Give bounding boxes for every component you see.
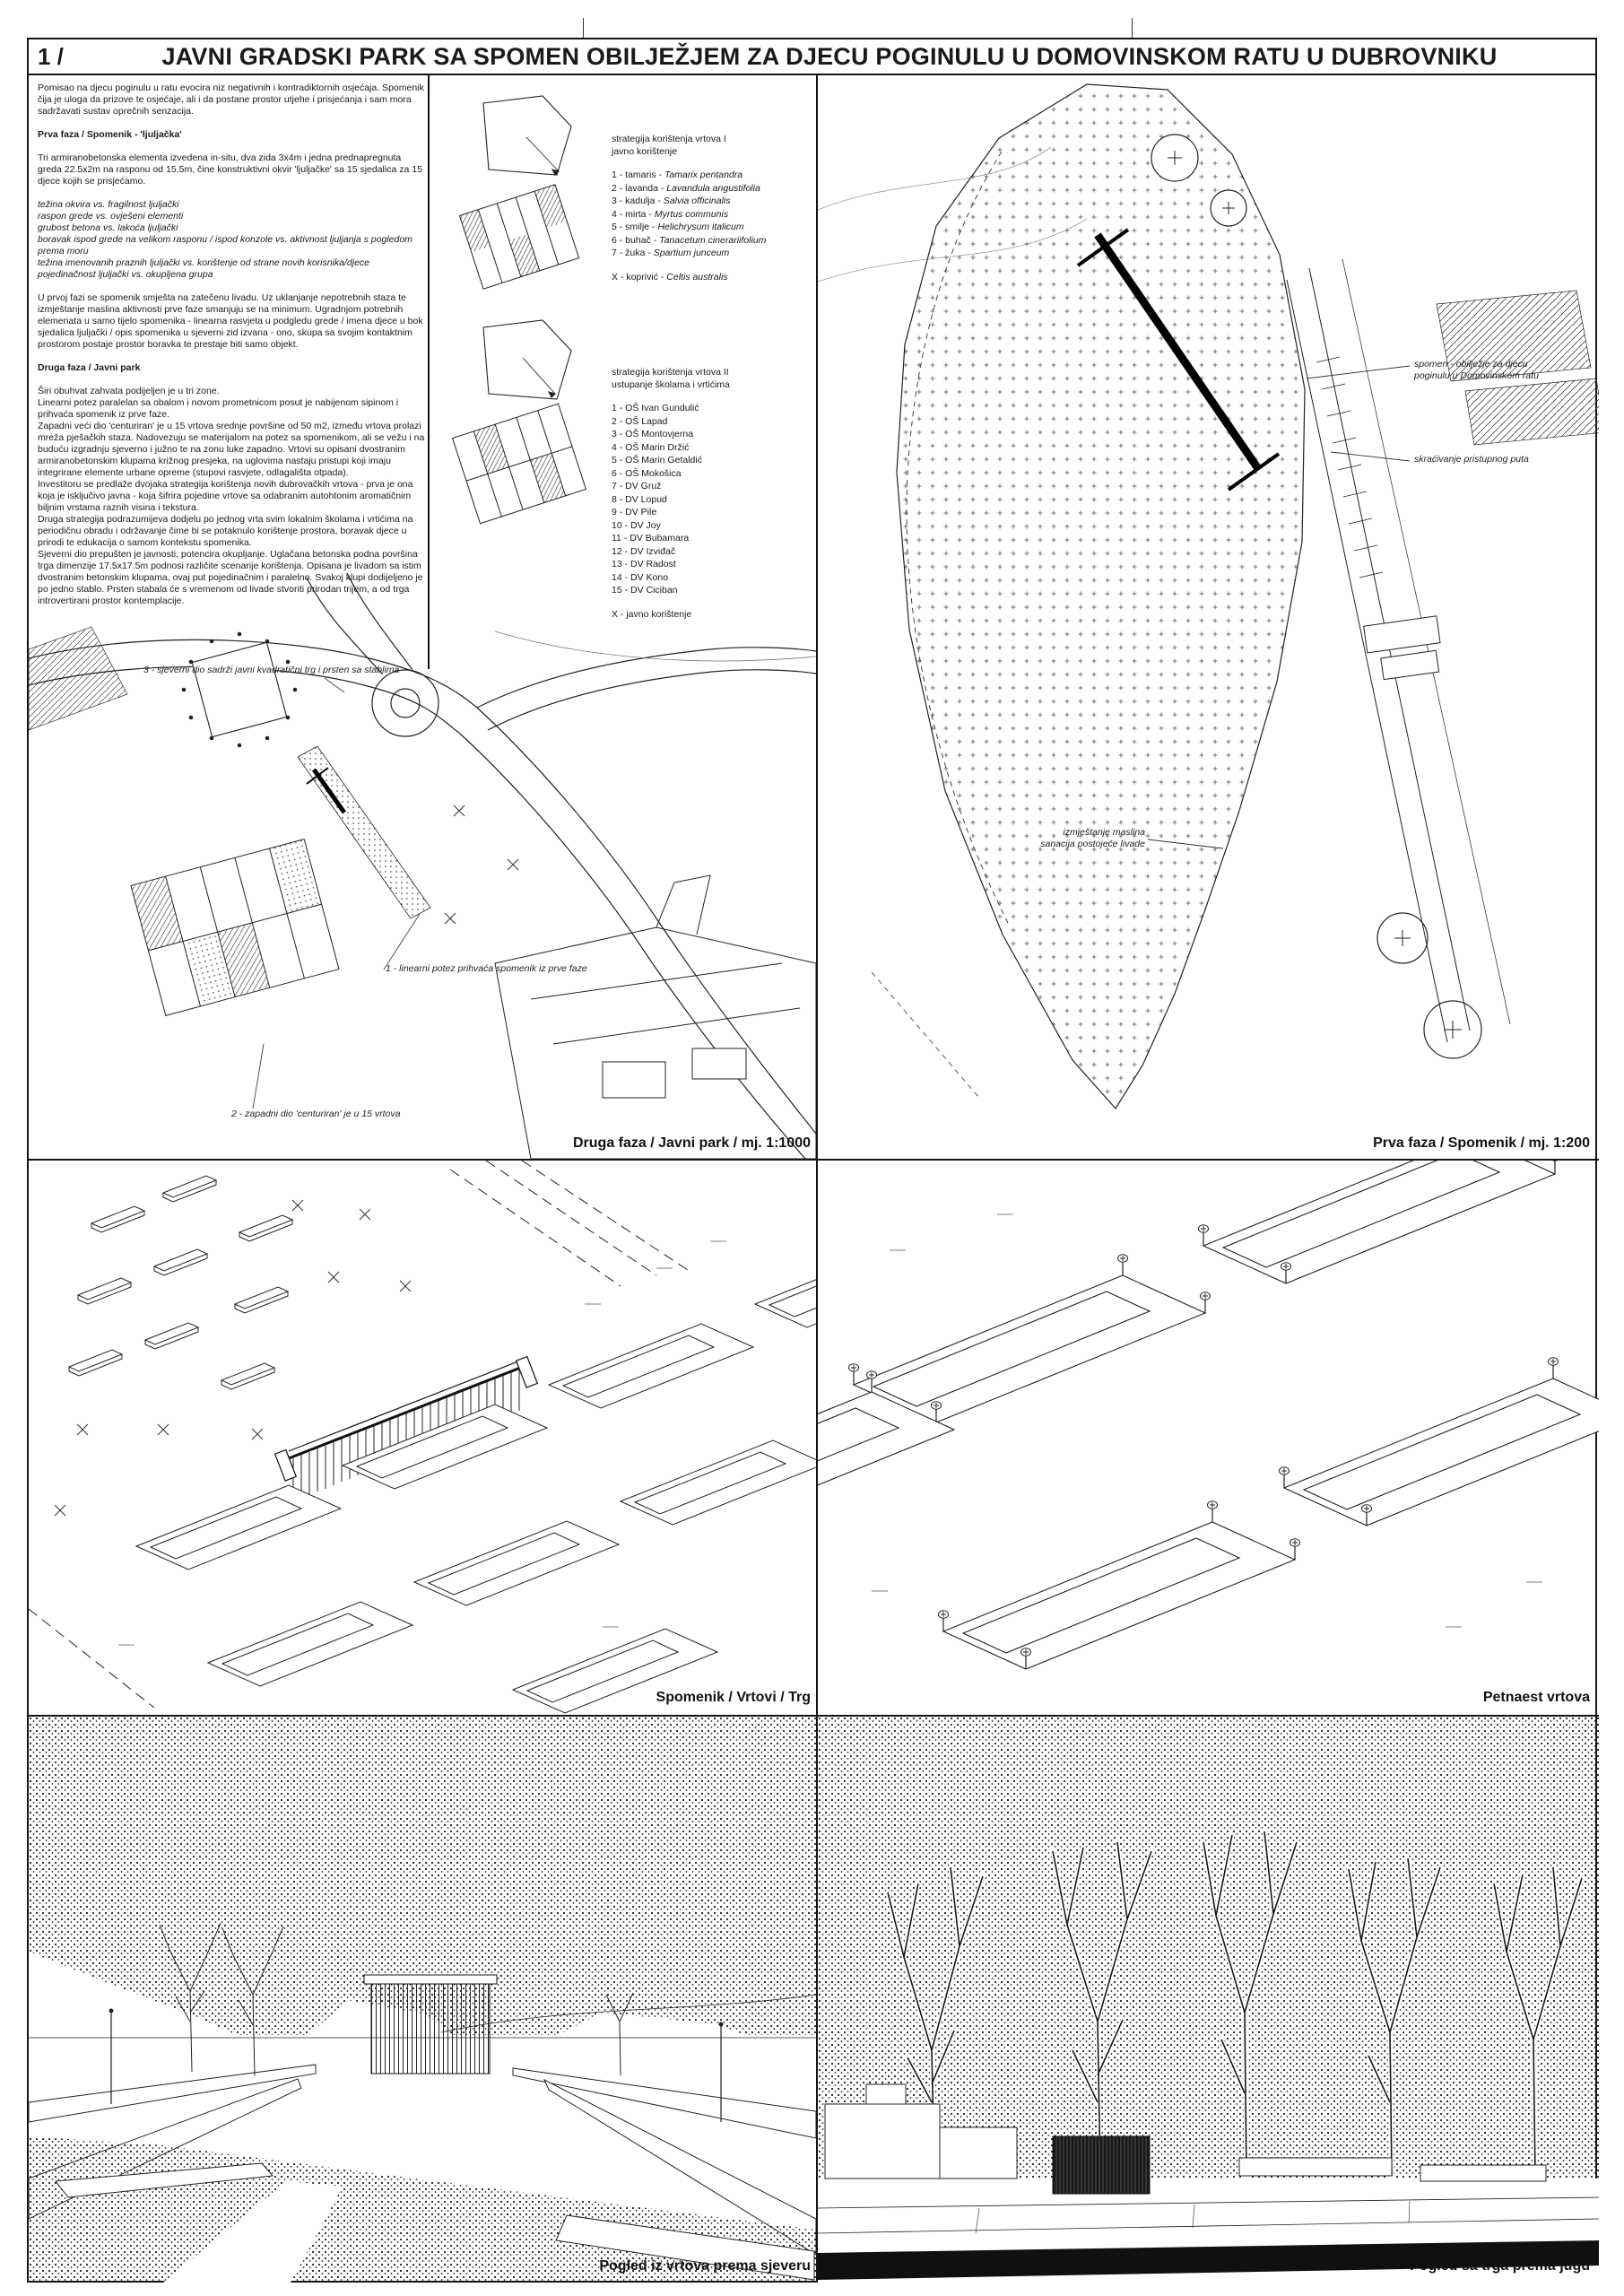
- plan2-label-zone2: 2 - zapadni dio 'centuriran' je u 15 vrt…: [231, 1109, 438, 1120]
- phase2-heading: Druga faza / Javni park: [38, 362, 425, 374]
- presentation-board-page: { "title": { "index": "1 /", "text": "JA…: [0, 0, 1624, 2296]
- strategy1-legend: strategija korištenja vrtova I javno kor…: [612, 133, 813, 283]
- list-item: 3 - OŠ Montovjerna: [612, 428, 813, 441]
- perspective-from-gardens-drawing: [29, 1717, 816, 2283]
- intro-paragraph: Pomisao na djecu poginulu u ratu evocira…: [38, 83, 425, 117]
- list-item: 9 - DV Pile: [612, 506, 813, 519]
- roundabout: [372, 670, 439, 736]
- axon-left-caption: Spomenik / Vrtovi / Trg: [656, 1690, 811, 1706]
- axon-right-caption: Petnaest vrtova: [1483, 1690, 1590, 1706]
- view-right-caption: Pogled sa trga prema jugu: [1410, 2258, 1590, 2274]
- perspective-from-square-drawing: [818, 1717, 1599, 2283]
- plan1-label-path: skraćivanje pristupnog puta: [1414, 454, 1576, 465]
- list-item: 4 - OŠ Marin Držić: [612, 441, 813, 455]
- list-item: 2 - OŠ Lapad: [612, 415, 813, 429]
- list-item: 1 - OŠ Ivan Gundulić: [612, 402, 813, 415]
- plan2-caption: Druga faza / Javni park / mj. 1:1000: [573, 1135, 811, 1152]
- list-item: 7 - žuka - Spartium junceum: [612, 247, 813, 260]
- square-with-tree-ring: [182, 632, 298, 748]
- list-item: 6 - OŠ Mokošica: [612, 467, 813, 481]
- plan1-label-monument: spomen - obilježje za djecu poginulu u D…: [1414, 359, 1576, 382]
- strategy2-title: strategija korištenja vrtova II ustupanj…: [612, 366, 813, 391]
- plan1-label-olives: izmještanje maslina sanacija postojeće l…: [1006, 827, 1145, 850]
- phase1-body: Tri armiranobetonska elementa izvedena i…: [38, 152, 425, 187]
- list-item: 5 - smilje - Helichrysum italicum: [612, 221, 813, 234]
- plant-list-extra: X - koprivić - Celtis australis: [612, 271, 813, 284]
- plan1-caption: Prva faza / Spomenik / mj. 1:200: [1373, 1135, 1590, 1152]
- list-item: 8 - DV Lopud: [612, 493, 813, 507]
- title-bar: 1 / JAVNI GRADSKI PARK SA SPOMEN OBILJEŽ…: [29, 39, 1595, 75]
- list-item: 3 - kadulja - Salvia officinalis: [612, 195, 813, 208]
- fifteen-gardens-grid: [131, 839, 339, 1016]
- page-title: JAVNI GRADSKI PARK SA SPOMEN OBILJEŽJEM …: [64, 43, 1595, 71]
- project-description: Pomisao na djecu poginulu u ratu evocira…: [38, 83, 425, 619]
- site-plan-phase2-drawing: [29, 542, 816, 1159]
- view-left-caption: Pogled iz vrtova prema sjeveru: [599, 2258, 811, 2274]
- list-item: 2 - lavanda - Lavandula angustifolia: [612, 182, 813, 196]
- garden-frames: [818, 1161, 1599, 1669]
- list-item: 10 - DV Joy: [612, 519, 813, 533]
- list-item: 6 - buhač - Tanacetum cinerariifolium: [612, 234, 813, 248]
- site-plan-phase1-drawing: [818, 75, 1599, 1159]
- list-item: 1 - tamaris - Tamarix pentandra: [612, 169, 813, 182]
- phase1-heading: Prva faza / Spomenik - 'ljuljačka': [38, 129, 425, 141]
- panel-number: 1 /: [38, 43, 64, 71]
- list-item: 5 - OŠ Marin Getaldić: [612, 454, 813, 467]
- monument-ribbed-block: [1053, 2136, 1150, 2194]
- list-item: 4 - mirta - Myrtus communis: [612, 208, 813, 222]
- list-item: X - koprivić - Celtis australis: [612, 271, 813, 284]
- plan2-label-zone3: 3 - sjeverni dio sadrži javni kvadratičn…: [143, 665, 453, 676]
- plant-list: 1 - tamaris - Tamarix pentandra2 - lavan…: [612, 169, 813, 260]
- existing-buildings-hatch: [29, 627, 127, 730]
- strategy2-sketch-drawing: [437, 313, 598, 528]
- strategy1-title: strategija korištenja vrtova I javno kor…: [612, 133, 813, 158]
- list-item: 7 - DV Gruž: [612, 480, 813, 493]
- phase1-body2: U prvoj fazi se spomenik smješta na zate…: [38, 292, 425, 351]
- strategy1-sketch-drawing: [437, 89, 598, 304]
- plan2-label-zone1: 1 - linearni potez prihvaća spomenik iz …: [386, 963, 619, 975]
- boundary-dashed: [872, 972, 979, 1098]
- tree-marks: [445, 805, 518, 924]
- garden-frames: [136, 1243, 816, 1713]
- monument-ribbed-block: [364, 1975, 497, 2074]
- axonometric-fifteen-gardens-drawing: [818, 1161, 1599, 1715]
- stairs-hatch: [1465, 378, 1599, 445]
- buildings: [1364, 616, 1445, 682]
- presentation-board: 1 / JAVNI GRADSKI PARK SA SPOMEN OBILJEŽ…: [27, 38, 1597, 2283]
- phase1-contrasts: težina okvira vs. fragilnost ljuljački r…: [38, 199, 425, 281]
- benches: [69, 1176, 292, 1389]
- axonometric-monument-gardens-drawing: [29, 1161, 816, 1715]
